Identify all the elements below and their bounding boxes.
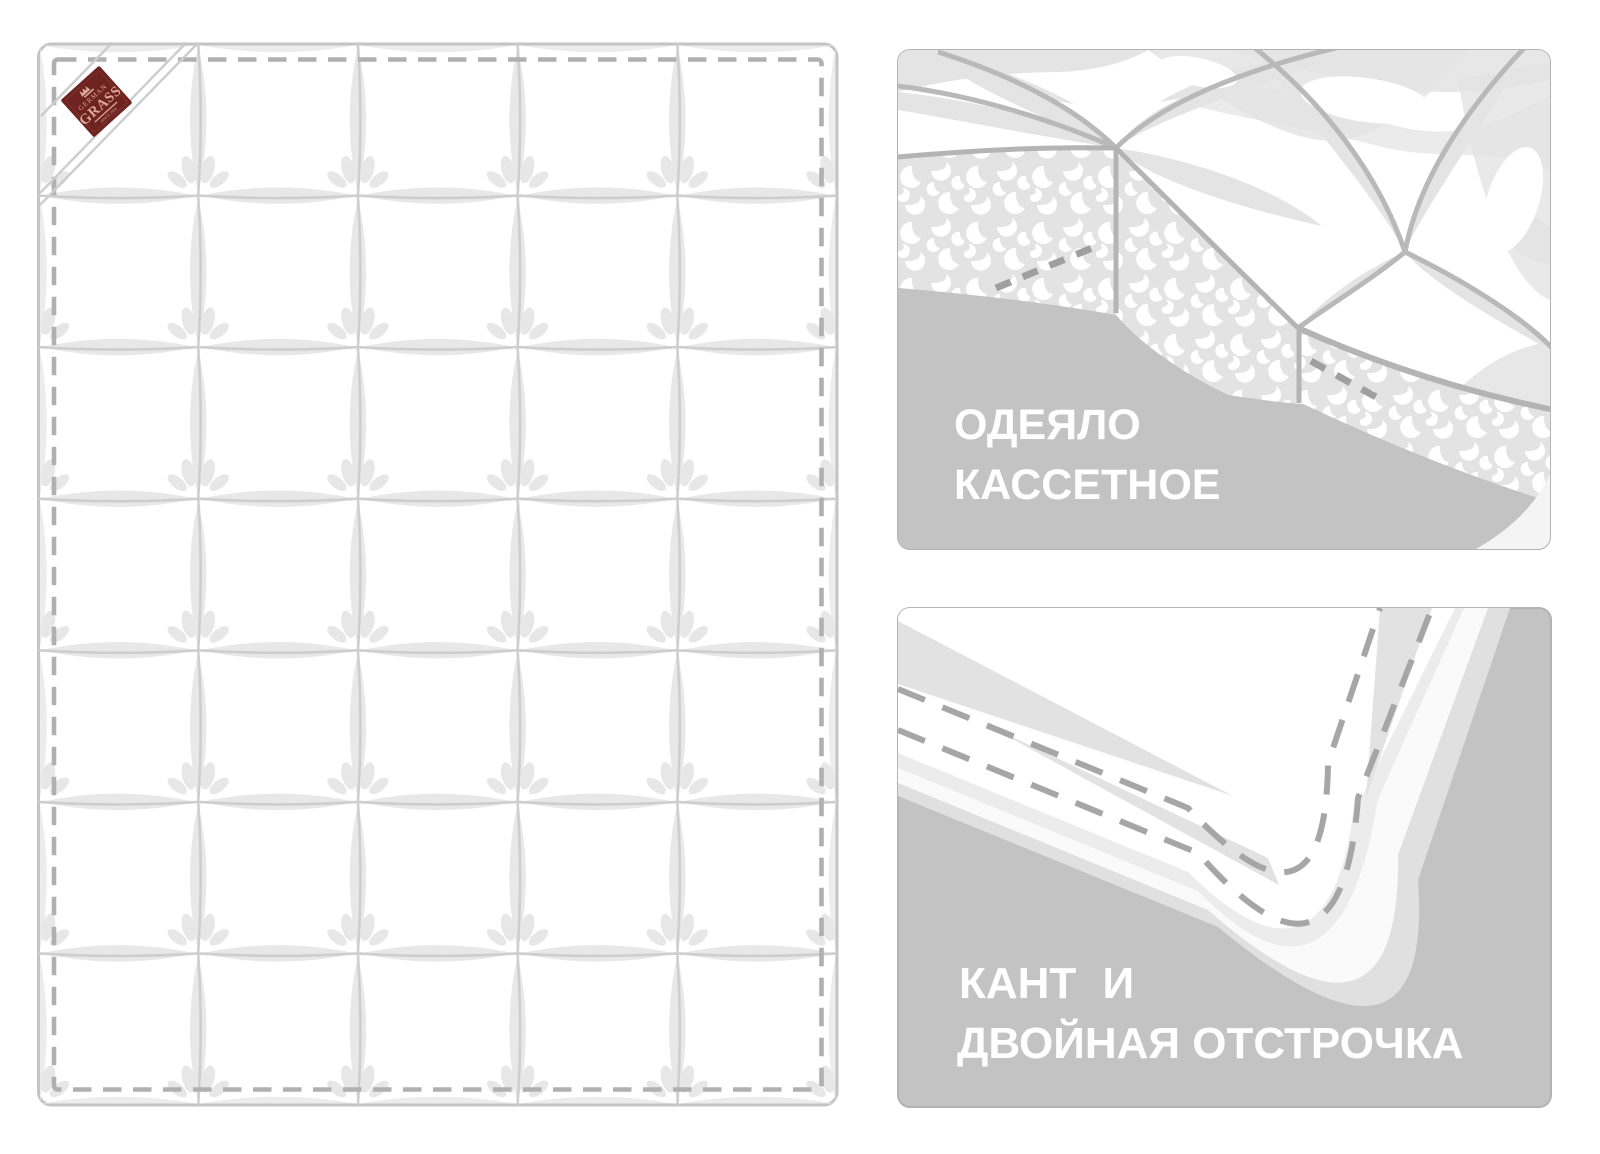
svg-text:ОДЕЯЛО: ОДЕЯЛО — [954, 401, 1141, 449]
svg-text:КАНТ И: КАНТ И — [959, 959, 1134, 1008]
svg-text:КАССЕТНОЕ: КАССЕТНОЕ — [954, 461, 1220, 509]
svg-text:ДВОЙНАЯ ОТСТРОЧКА: ДВОЙНАЯ ОТСТРОЧКА — [957, 1017, 1463, 1068]
